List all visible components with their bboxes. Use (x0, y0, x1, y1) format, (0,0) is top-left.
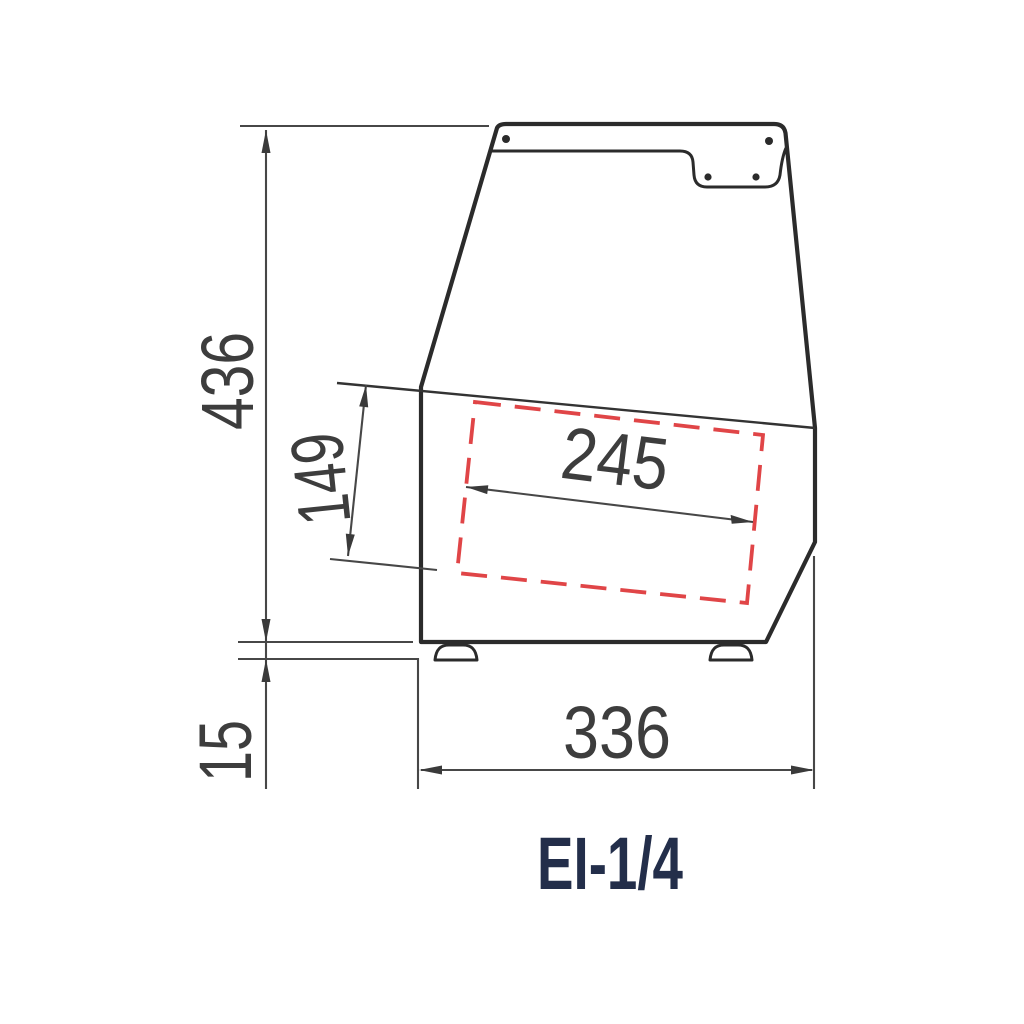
rivet-dot (704, 173, 711, 180)
arrowhead (346, 534, 355, 556)
arrowhead (791, 766, 814, 775)
arrowhead (262, 619, 271, 642)
dimension-label-pan-width: 245 (557, 411, 673, 506)
arrowhead (359, 385, 368, 407)
dimension-label-pan-depth: 149 (274, 429, 366, 529)
arrowhead (419, 766, 442, 775)
rivet-dot (752, 173, 759, 180)
display-case-side-view-drawing: 436 149 245 336 15 EI-1/4 (0, 0, 1024, 1024)
arrowhead (262, 659, 271, 682)
technical-drawing-page: 436 149 245 336 15 EI-1/4 (0, 0, 1024, 1024)
rivet-dot (502, 135, 510, 143)
rivet-dot (765, 137, 773, 145)
dimension-label-base-width: 336 (563, 691, 671, 774)
dimension-label-total-height: 436 (186, 332, 269, 430)
foot-right (710, 645, 752, 660)
dimension-label-foot-height: 15 (184, 720, 267, 782)
foot-left (435, 645, 477, 660)
display-case-outline (421, 124, 815, 642)
arrowhead (262, 130, 271, 153)
model-title: EI-1/4 (537, 822, 683, 905)
